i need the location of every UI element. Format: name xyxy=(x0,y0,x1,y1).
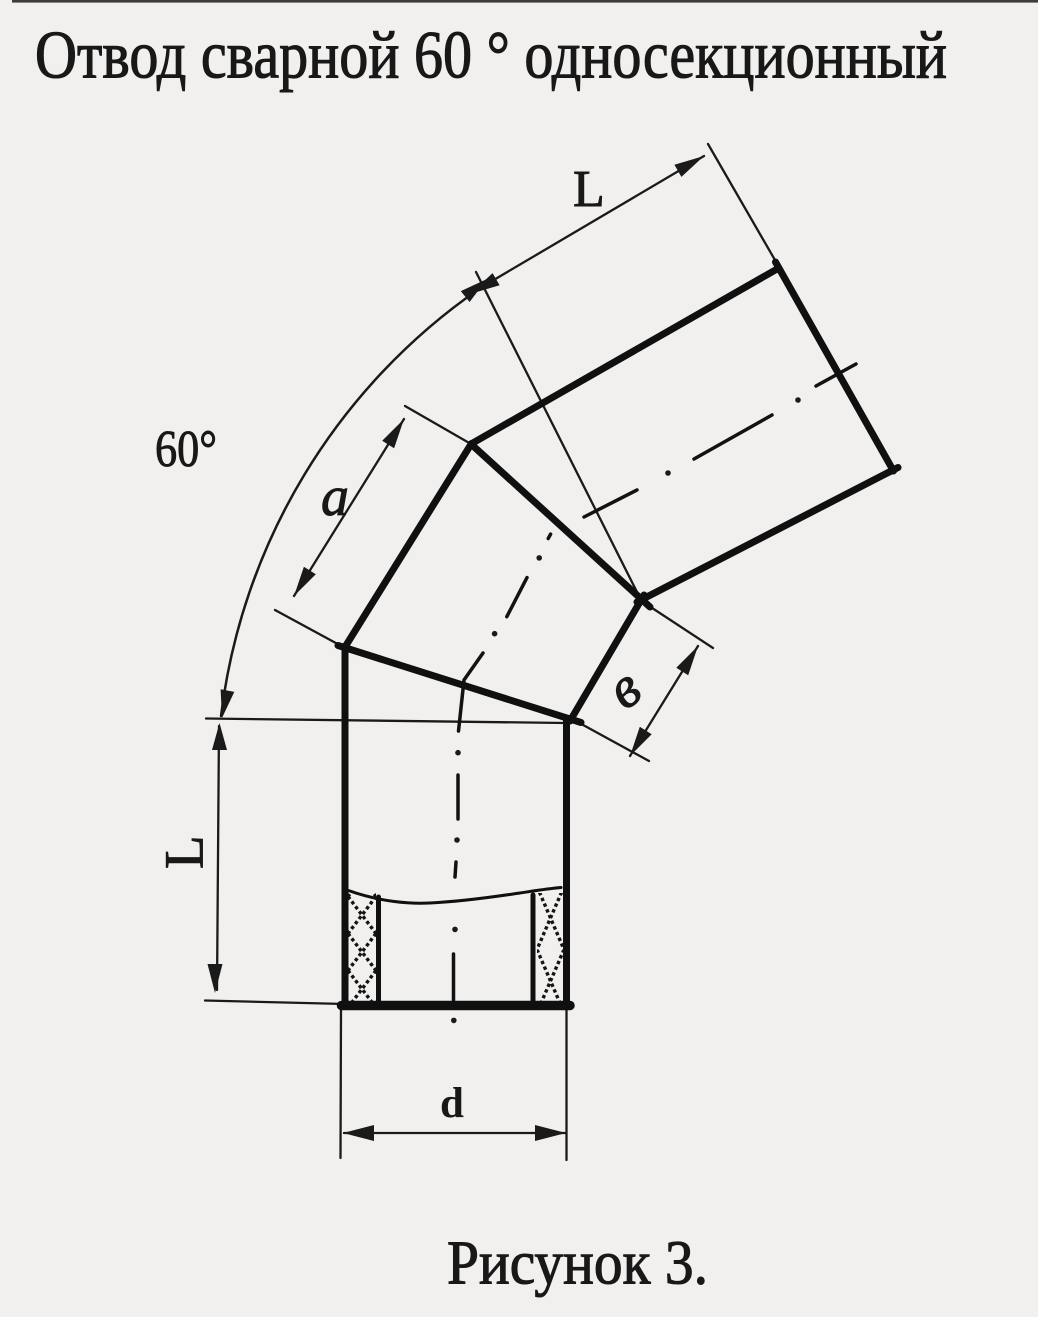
svg-text:d: d xyxy=(440,1080,464,1127)
svg-text:60°: 60° xyxy=(155,421,217,478)
svg-text:L: L xyxy=(573,161,605,218)
svg-text:Рисунок 3.: Рисунок 3. xyxy=(447,1230,708,1298)
svg-text:Отвод сварной 60 ° односекцион: Отвод сварной 60 ° односекционный xyxy=(35,17,947,93)
svg-text:L: L xyxy=(154,835,215,869)
svg-text:a: a xyxy=(321,466,349,528)
